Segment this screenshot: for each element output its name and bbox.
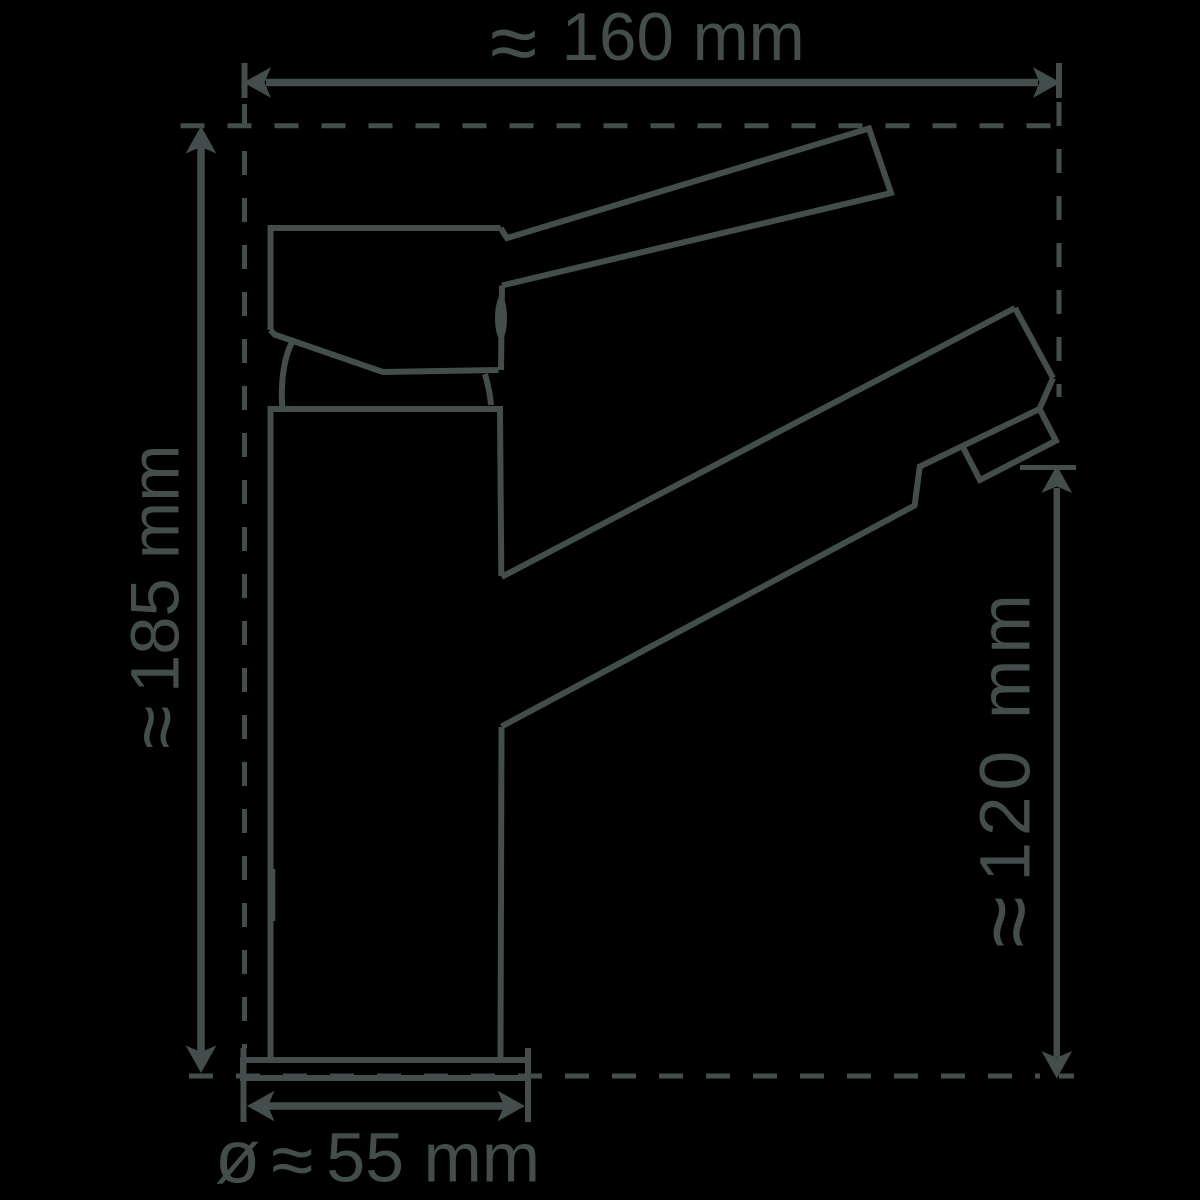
svg-text:ø: ø xyxy=(215,1115,260,1198)
svg-text:185 mm: 185 mm xyxy=(116,444,193,693)
svg-text:≈: ≈ xyxy=(955,896,1061,948)
svg-text:120 mm: 120 mm xyxy=(966,594,1046,882)
svg-text:160 mm: 160 mm xyxy=(562,0,805,75)
svg-text:55 mm: 55 mm xyxy=(326,1119,540,1197)
svg-text:≈: ≈ xyxy=(271,1117,313,1200)
svg-text:≈: ≈ xyxy=(112,705,201,749)
svg-text:≈: ≈ xyxy=(490,0,537,91)
